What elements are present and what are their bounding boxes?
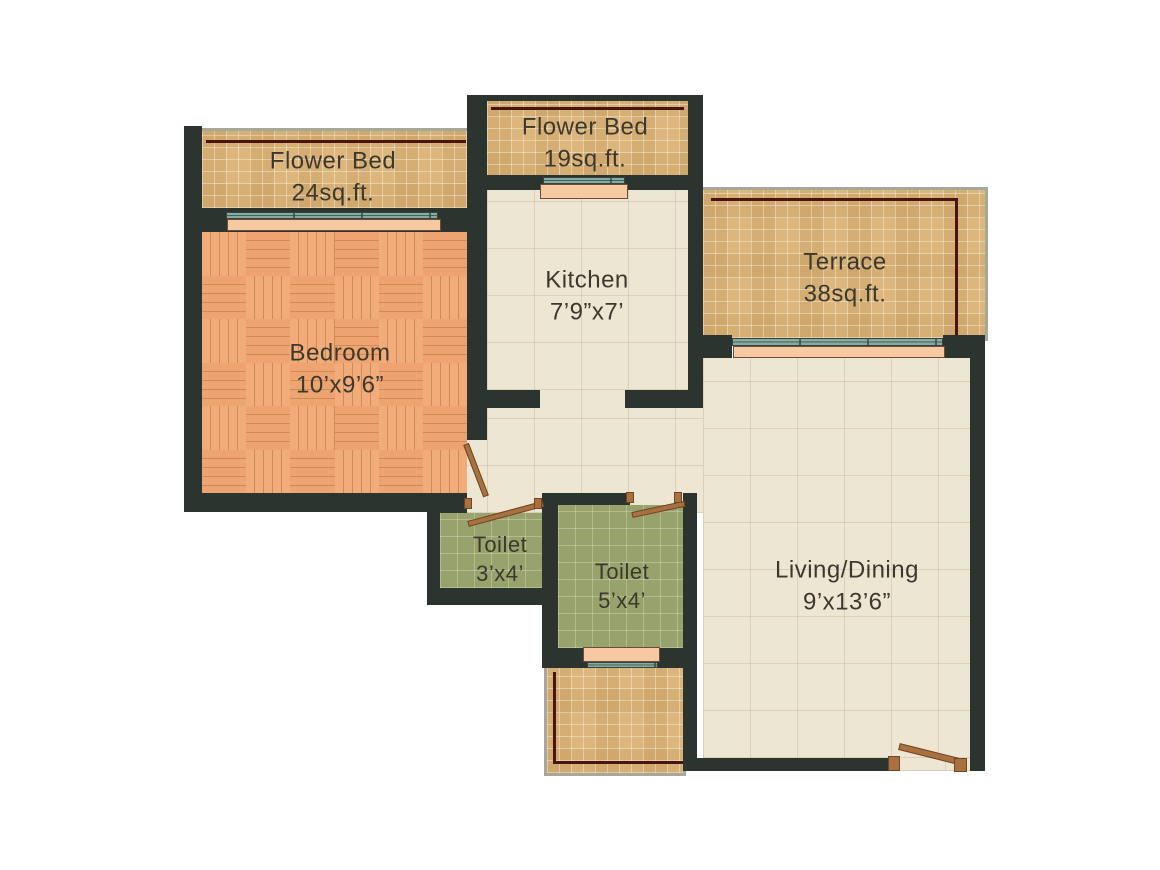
parquet-tile — [423, 232, 467, 276]
parquet-tile — [202, 450, 247, 494]
wall-living-bottom — [683, 758, 898, 771]
room-dims: 9’x13’6” — [775, 586, 919, 618]
room-dims: 3’x4’ — [473, 559, 527, 588]
bedroom-window-sill — [227, 219, 441, 231]
room-dims: 10’x9’6” — [290, 369, 391, 401]
room-name: Toilet — [595, 557, 649, 586]
bedroom-window — [226, 212, 438, 219]
wall-toilet-small-bottom — [427, 588, 558, 605]
wall-kitchen-bottom-left — [483, 390, 540, 408]
parquet-tile — [246, 232, 291, 276]
kitchen-window-sill — [540, 184, 628, 199]
parquet-tile — [379, 406, 424, 450]
toilet-small-door-post-left — [464, 498, 472, 509]
living-dining-label: Living/Dining 9’x13’6” — [775, 554, 919, 617]
parquet-tile — [246, 406, 291, 450]
wall-kitchen-right — [688, 95, 703, 408]
wall-toilet-large-right — [683, 493, 697, 771]
parquet-tile — [379, 232, 424, 276]
parquet-tile — [202, 276, 247, 320]
wall-mid-vertical — [467, 95, 487, 440]
flower-bed-19-accent-line — [491, 107, 684, 110]
parquet-tile — [246, 363, 291, 407]
room-name: Toilet — [473, 530, 527, 559]
wall-left — [184, 126, 202, 512]
room-dims: 5’x4’ — [595, 586, 649, 615]
flower-bed-24-label: Flower Bed 24sq.ft. — [270, 145, 396, 208]
flower-bed-24-edge — [202, 128, 470, 131]
bedroom-label: Bedroom 10’x9’6” — [290, 337, 391, 400]
dry-balcony-accent-line-bottom — [553, 761, 683, 764]
toilet-large-window — [587, 662, 658, 668]
room-name: Living/Dining — [775, 554, 919, 586]
dry-balcony-border — [544, 665, 686, 776]
terrace-accent-line-top — [711, 198, 958, 201]
toilet-large-door-post-right — [674, 492, 682, 503]
parquet-tile — [246, 450, 291, 494]
room-dims: 7’9”x7’ — [545, 296, 629, 328]
parquet-tile — [335, 232, 380, 276]
parquet-tile — [379, 276, 424, 320]
parquet-tile — [335, 450, 380, 494]
parquet-tile — [290, 232, 335, 276]
parquet-tile — [423, 450, 467, 494]
room-dims: 24sq.ft. — [270, 177, 396, 209]
room-name: Kitchen — [545, 264, 629, 296]
terrace-accent-line-right — [955, 198, 958, 338]
toilet-large-window-sill — [583, 647, 660, 662]
room-name: Bedroom — [290, 337, 391, 369]
parquet-tile — [423, 276, 467, 320]
main-entrance-door-post-right — [954, 758, 967, 772]
wall-kitchen-bottom-right — [625, 390, 703, 408]
wall-bedroom-bottom — [184, 493, 467, 512]
terrace-label: Terrace 38sq.ft. — [803, 246, 887, 309]
flower-bed-24-accent-line — [206, 140, 466, 143]
wall-toilet-large-top — [558, 493, 630, 505]
toilet-small-label: Toilet 3’x4’ — [473, 530, 527, 588]
parquet-tile — [246, 276, 291, 320]
parquet-tile — [202, 232, 247, 276]
room-dims: 38sq.ft. — [803, 278, 887, 310]
room-name: Terrace — [803, 246, 887, 278]
kitchen-window — [543, 177, 625, 184]
parquet-tile — [290, 450, 335, 494]
wall-flower-bed-19-top — [467, 95, 703, 101]
parquet-tile — [246, 319, 291, 363]
floor-plan: Flower Bed 24sq.ft. Flower Bed 19sq.ft. … — [0, 0, 1160, 870]
parquet-tile — [379, 450, 424, 494]
toilet-large-door-post-left — [626, 492, 634, 503]
main-entrance-door-post-left — [888, 756, 900, 771]
parquet-tile — [290, 406, 335, 450]
wall-terrace-window-left — [703, 335, 732, 358]
parquet-tile — [202, 406, 247, 450]
terrace-window — [732, 338, 943, 346]
toilet-small-door-post-right — [534, 498, 542, 509]
parquet-tile — [202, 319, 247, 363]
parquet-tile — [335, 406, 380, 450]
dry-balcony-accent-line-left — [553, 672, 556, 764]
toilet-large-label: Toilet 5’x4’ — [595, 557, 649, 615]
parquet-tile — [290, 276, 335, 320]
wall-living-right — [970, 338, 985, 771]
parquet-tile — [335, 276, 380, 320]
room-name: Flower Bed — [522, 111, 648, 143]
terrace-window-sill — [733, 346, 945, 358]
kitchen-label: Kitchen 7’9”x7’ — [545, 264, 629, 327]
wall-between-toilets — [542, 493, 558, 668]
parquet-tile — [202, 363, 247, 407]
parquet-tile — [423, 363, 467, 407]
flower-bed-19-label: Flower Bed 19sq.ft. — [522, 111, 648, 174]
parquet-tile — [423, 319, 467, 363]
parquet-tile — [423, 406, 467, 450]
room-dims: 19sq.ft. — [522, 143, 648, 175]
room-name: Flower Bed — [270, 145, 396, 177]
